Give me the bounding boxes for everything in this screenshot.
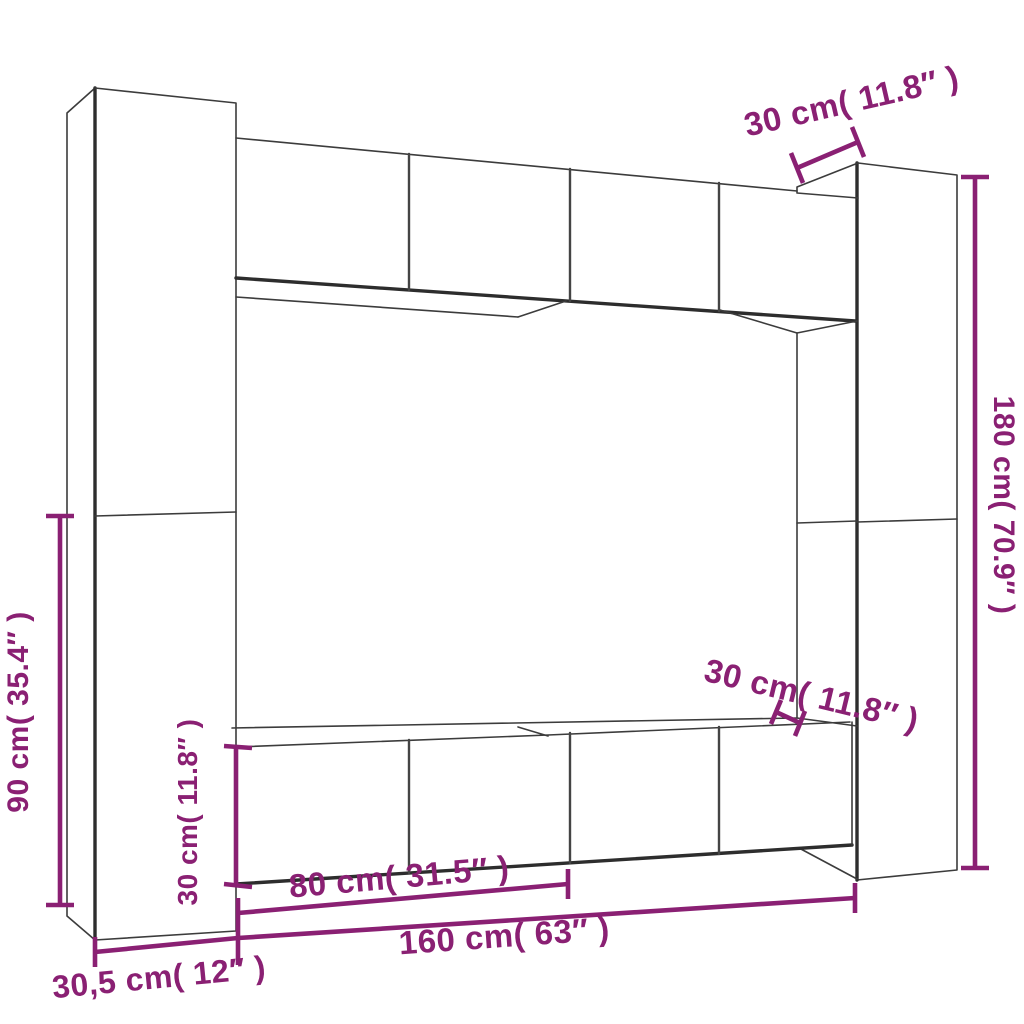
dimension-top-depth: 30 cm( 11.8″ ) [741, 58, 963, 183]
dimension-left-height: 90 cm( 35.4″ ) [2, 516, 74, 905]
bottom-row [232, 718, 857, 884]
right-column [797, 163, 957, 880]
right-column-inner-face-divider [797, 521, 857, 523]
top-row [236, 138, 855, 333]
dimension-line [95, 938, 238, 952]
dimension-diagram: 30 cm( 11.8″ ) 180 cm( 70.9″ ) 90 cm( 35… [0, 0, 1024, 1024]
top-row-bottom-edge [236, 278, 855, 321]
left-column-divider [95, 512, 236, 516]
dimension-tick [224, 746, 252, 748]
top-row-underside-back-edge [236, 297, 518, 317]
right-column-inner-face-top-edge [797, 321, 857, 333]
dimension-column-width: 30,5 cm( 12″ ) [50, 937, 267, 1005]
dimension-line [797, 142, 858, 168]
dimension-door-pair-width: 80 cm( 31.5″ ) [238, 848, 568, 913]
left-column [67, 88, 236, 940]
dimension-label: 160 cm( 63″ ) [398, 910, 611, 962]
right-column-divider [857, 519, 957, 522]
tv-wall-unit-drawing: 30 cm( 11.8″ ) 180 cm( 70.9″ ) 90 cm( 35… [0, 0, 1024, 1024]
dimension-label: 180 cm( 70.9″ ) [987, 396, 1020, 615]
top-row-underside-seam [518, 301, 566, 317]
right-column-inner-face-bottom-edge [799, 848, 857, 879]
dimension-left-cabinet-height: 30 cm( 11.8″ ) [172, 719, 252, 906]
top-row-top-edge [236, 138, 797, 191]
dimension-label: 30 cm( 11.8″ ) [701, 651, 923, 738]
dimension-label: 90 cm( 35.4″ ) [2, 611, 35, 812]
dimension-tick [224, 884, 252, 887]
bottom-row-top-seam [518, 727, 548, 736]
dimension-label: 30,5 cm( 12″ ) [50, 949, 267, 1005]
bottom-row-back-top-edge [232, 718, 797, 728]
right-column-top-wedge [797, 163, 858, 198]
dimension-right-height: 180 cm( 70.9″ ) [961, 177, 1020, 868]
dimension-right-depth: 30 cm( 11.8″ ) [701, 651, 923, 738]
dimension-label: 30 cm( 11.8″ ) [172, 719, 203, 906]
dimension-label: 80 cm( 31.5″ ) [287, 848, 510, 904]
